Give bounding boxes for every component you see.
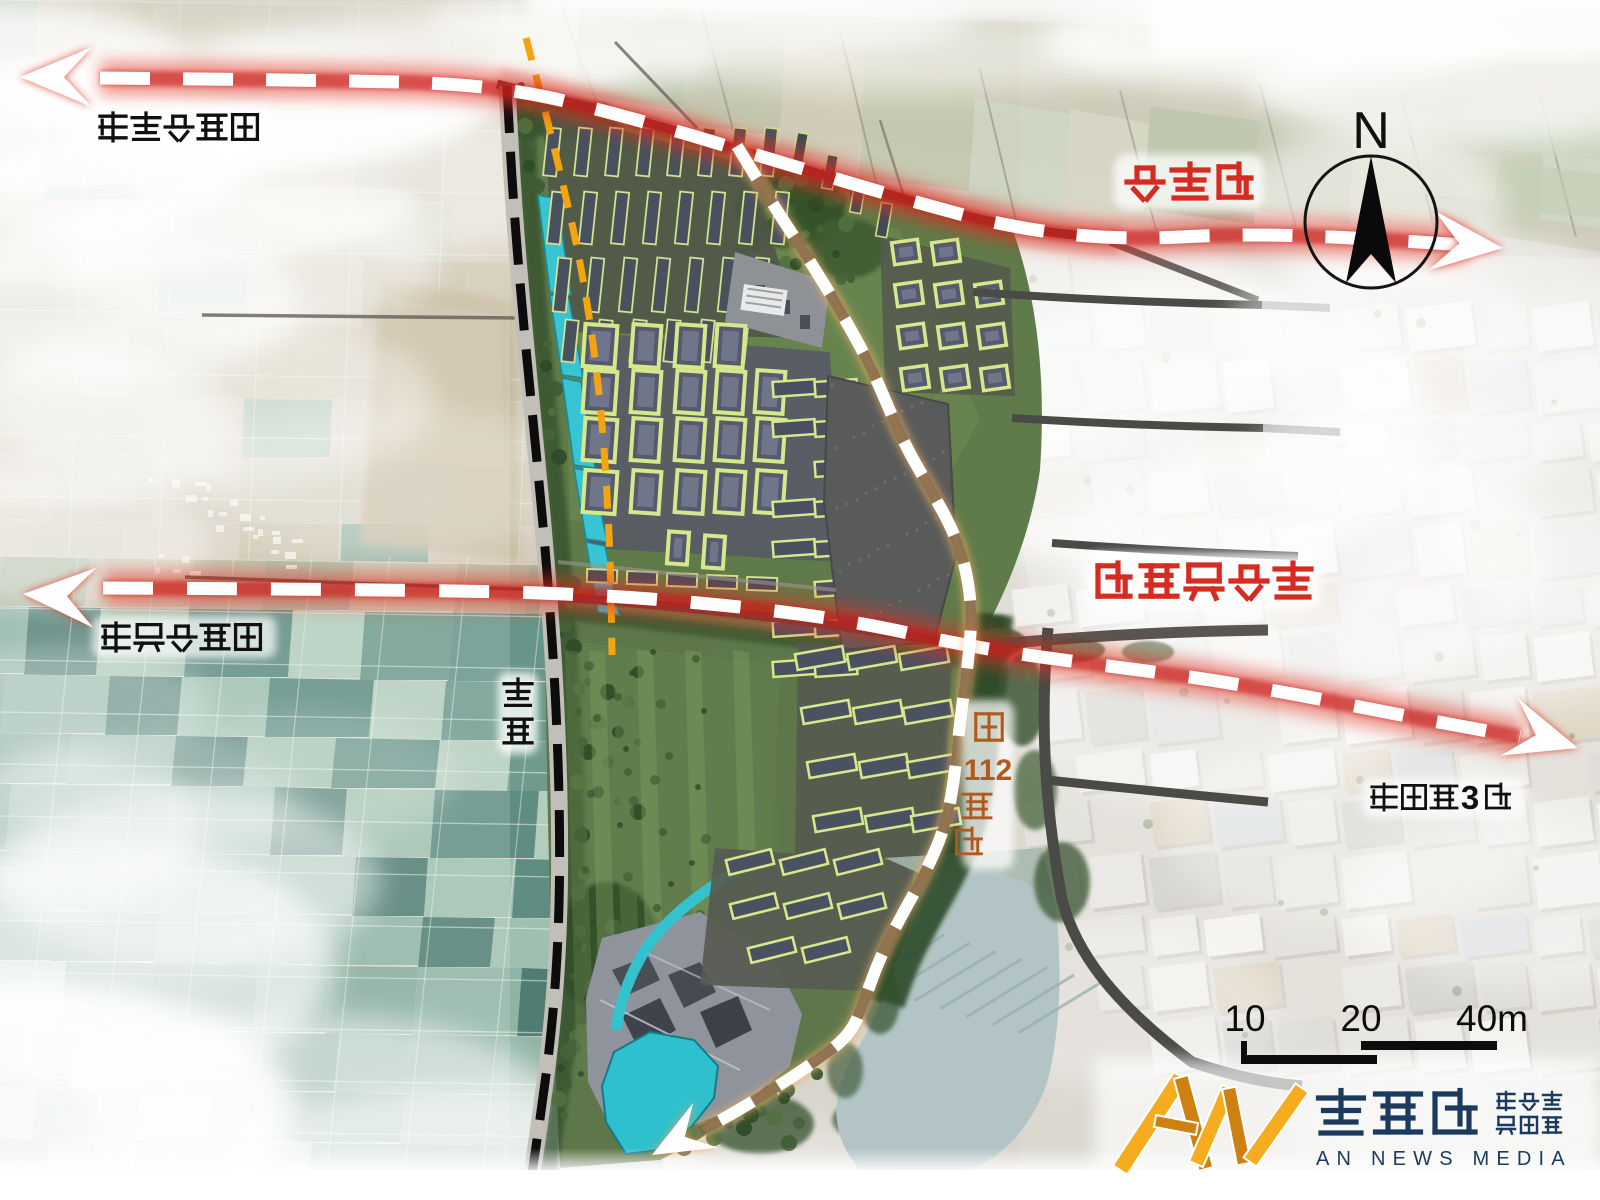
svg-text:AN NEWS MEDIA: AN NEWS MEDIA [1316,1148,1572,1170]
svg-text:3: 3 [1461,779,1479,816]
svg-text:40m: 40m [1456,998,1528,1039]
svg-text:10: 10 [1224,998,1265,1039]
svg-text:20: 20 [1340,998,1381,1039]
svg-text:112: 112 [964,754,1012,787]
svg-text:N: N [1352,102,1390,160]
